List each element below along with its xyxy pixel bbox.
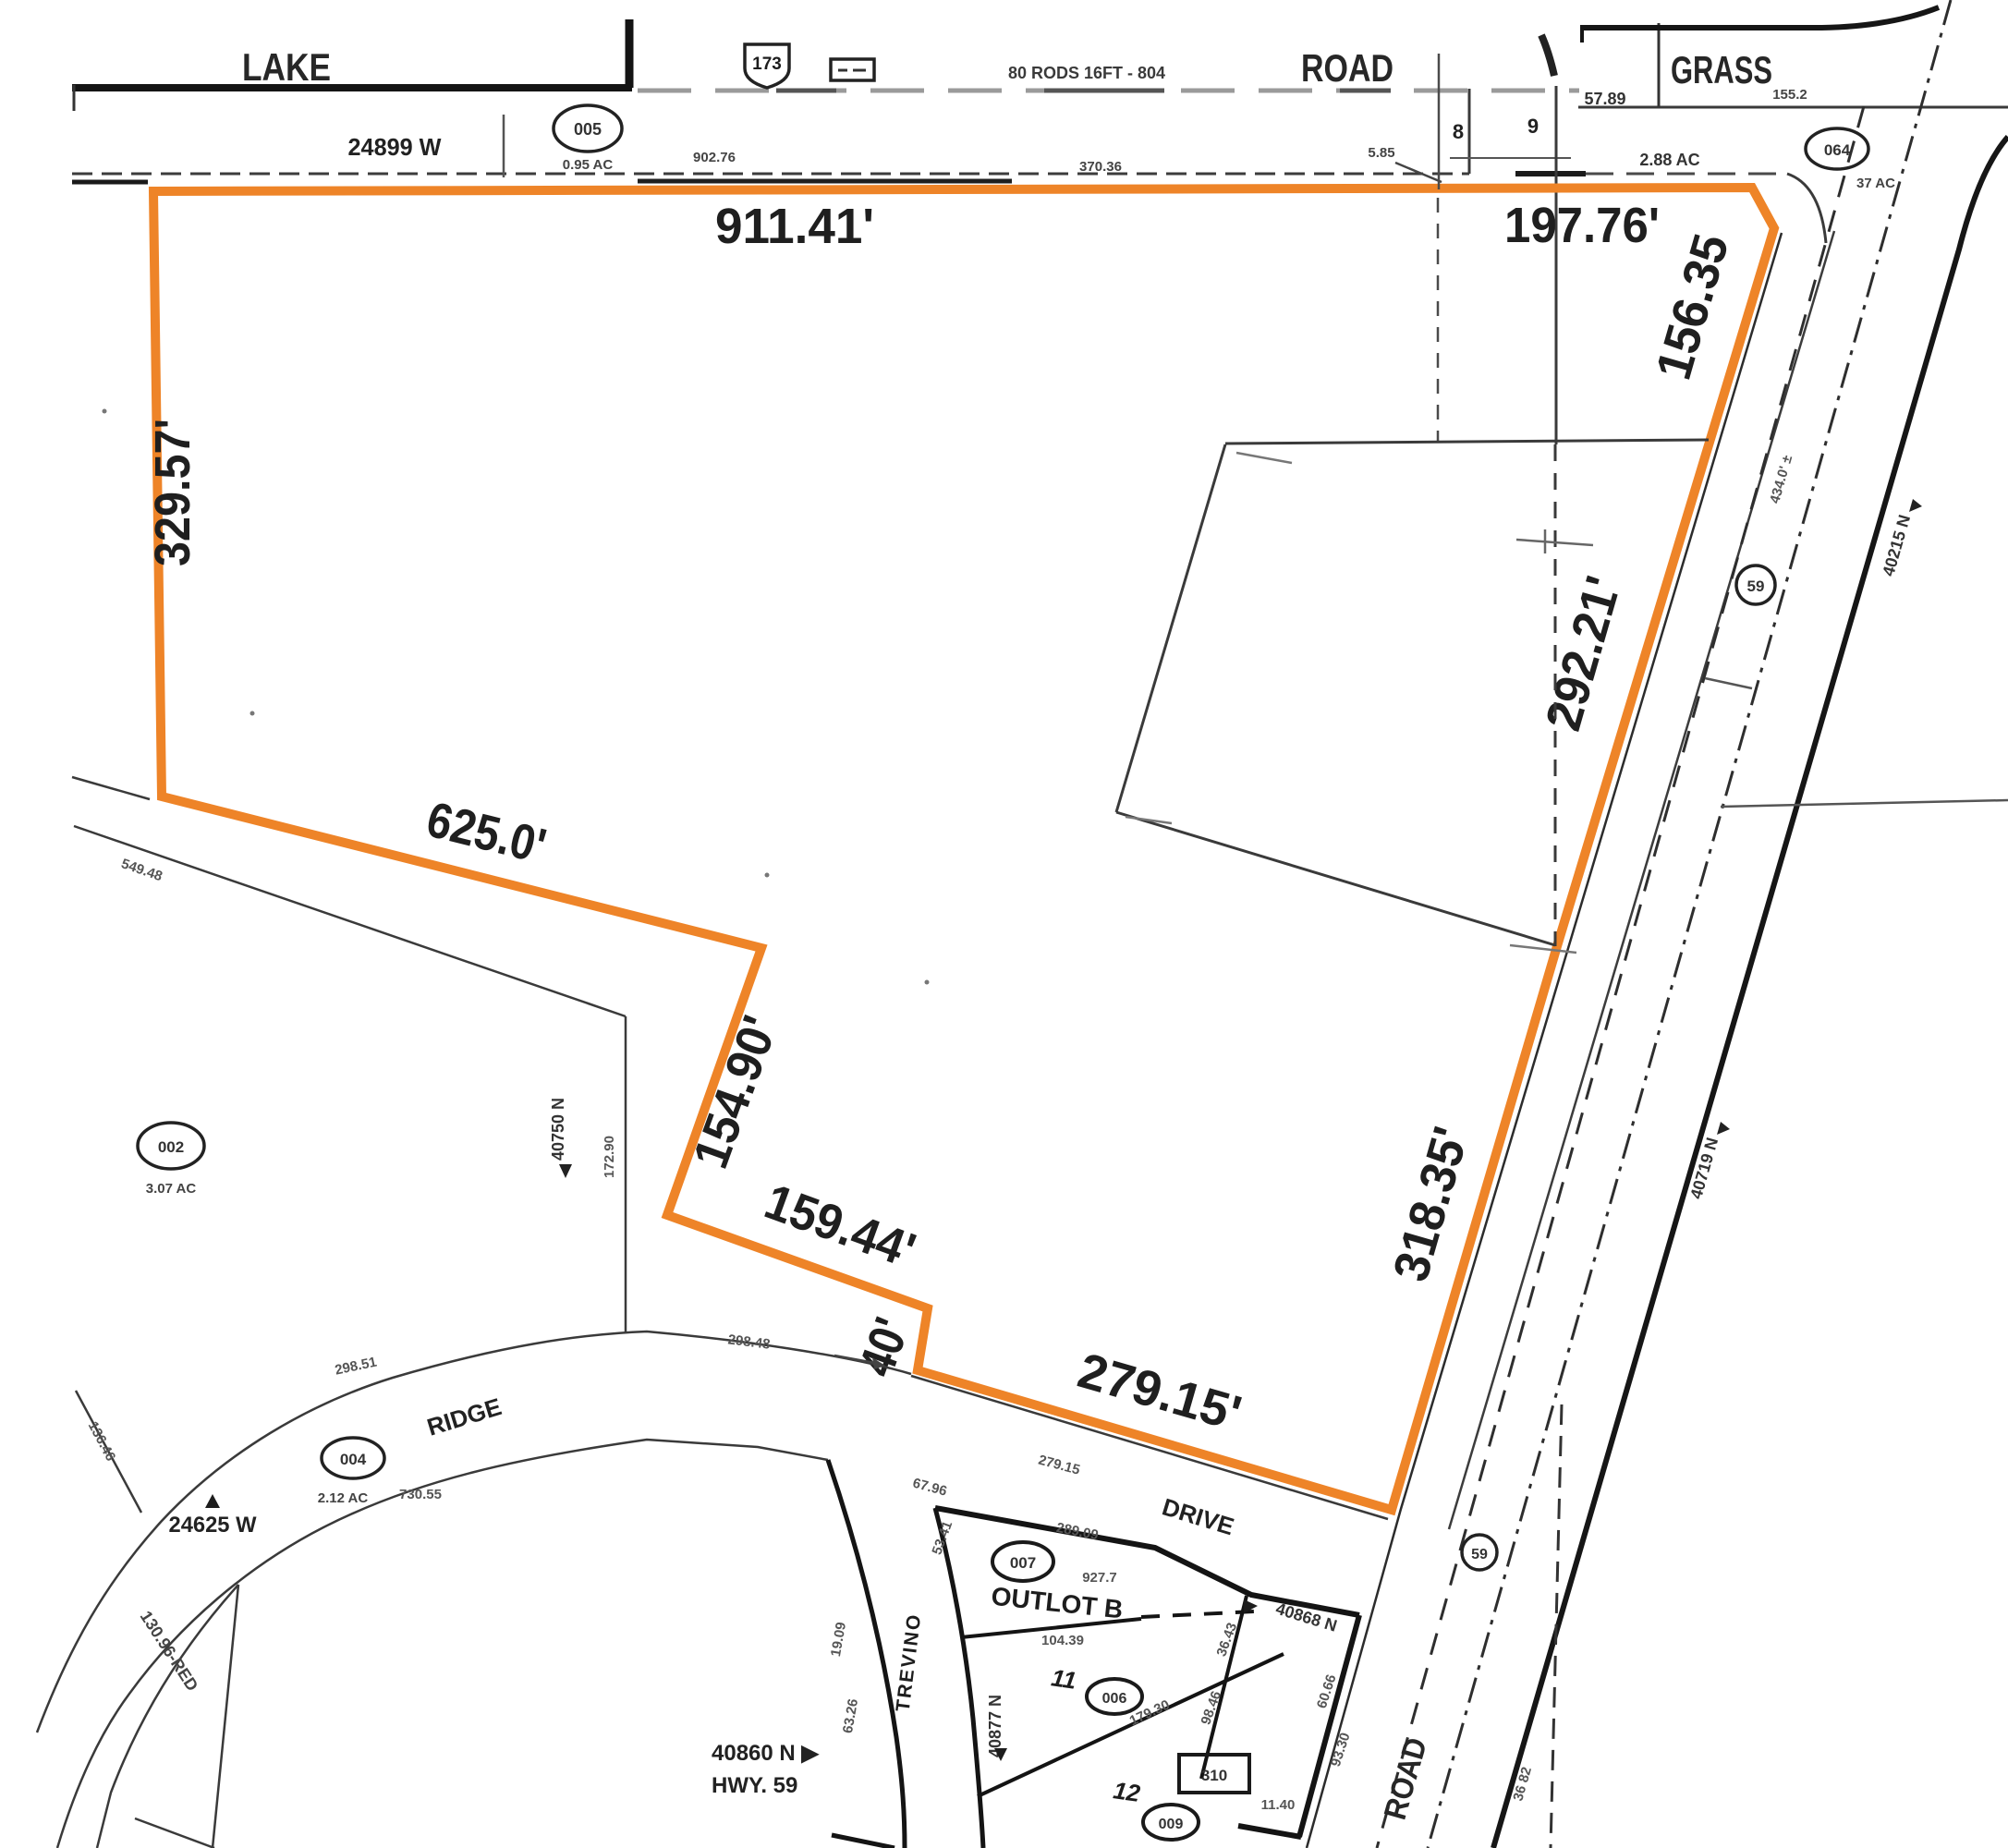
svg-text:2.12 AC: 2.12 AC [318, 1490, 369, 1506]
svg-text:11.40: 11.40 [1261, 1797, 1296, 1813]
svg-text:005: 005 [574, 120, 602, 139]
svg-text:11: 11 [1050, 1663, 1078, 1694]
svg-text:155.2: 155.2 [1772, 87, 1807, 103]
svg-text:59: 59 [1471, 1547, 1488, 1562]
svg-text:9: 9 [1527, 115, 1539, 138]
svg-text:ROAD: ROAD [1301, 46, 1393, 90]
svg-text:37 AC: 37 AC [1856, 176, 1895, 191]
svg-text:12: 12 [1112, 1776, 1142, 1807]
svg-text:GRASS: GRASS [1671, 48, 1772, 91]
svg-text:59: 59 [1747, 577, 1765, 595]
svg-text:370.36: 370.36 [1079, 159, 1122, 175]
svg-text:730.55: 730.55 [399, 1487, 442, 1502]
svg-text:064: 064 [1824, 141, 1851, 159]
svg-text:004: 004 [340, 1451, 367, 1468]
svg-text:40860 N ▶: 40860 N ▶ [712, 1741, 820, 1766]
svg-text:006: 006 [1102, 1691, 1127, 1707]
svg-text:57.89: 57.89 [1584, 90, 1625, 108]
svg-text:5.85: 5.85 [1368, 145, 1394, 161]
svg-text:902.76: 902.76 [693, 150, 736, 165]
svg-text:329.57': 329.57' [145, 419, 201, 566]
svg-text:80 RODS 16FT - 804: 80 RODS 16FT - 804 [1008, 64, 1165, 82]
svg-text:007: 007 [1010, 1554, 1036, 1572]
svg-text:310: 310 [1201, 1767, 1227, 1784]
svg-text:8: 8 [1453, 120, 1464, 143]
svg-text:197.76': 197.76' [1504, 198, 1660, 253]
svg-text:173: 173 [752, 55, 782, 74]
svg-text:911.41': 911.41' [715, 199, 874, 254]
svg-text:009: 009 [1159, 1817, 1184, 1832]
svg-text:24899 W: 24899 W [348, 133, 442, 161]
svg-text:LAKE: LAKE [242, 45, 331, 89]
svg-text:927.7: 927.7 [1082, 1570, 1117, 1586]
svg-text:104.39: 104.39 [1041, 1633, 1084, 1648]
svg-text:40750 N: 40750 N [549, 1098, 567, 1161]
svg-text:0.95 AC: 0.95 AC [563, 157, 614, 173]
svg-text:3.07 AC: 3.07 AC [146, 1181, 197, 1197]
svg-text:24625 W: 24625 W [169, 1513, 257, 1538]
svg-text:172.90: 172.90 [602, 1136, 617, 1178]
svg-text:HWY. 59: HWY. 59 [712, 1773, 797, 1798]
svg-text:40877 N: 40877 N [986, 1695, 1004, 1757]
svg-text:2.88 AC: 2.88 AC [1639, 151, 1699, 169]
svg-text:002: 002 [158, 1138, 184, 1156]
